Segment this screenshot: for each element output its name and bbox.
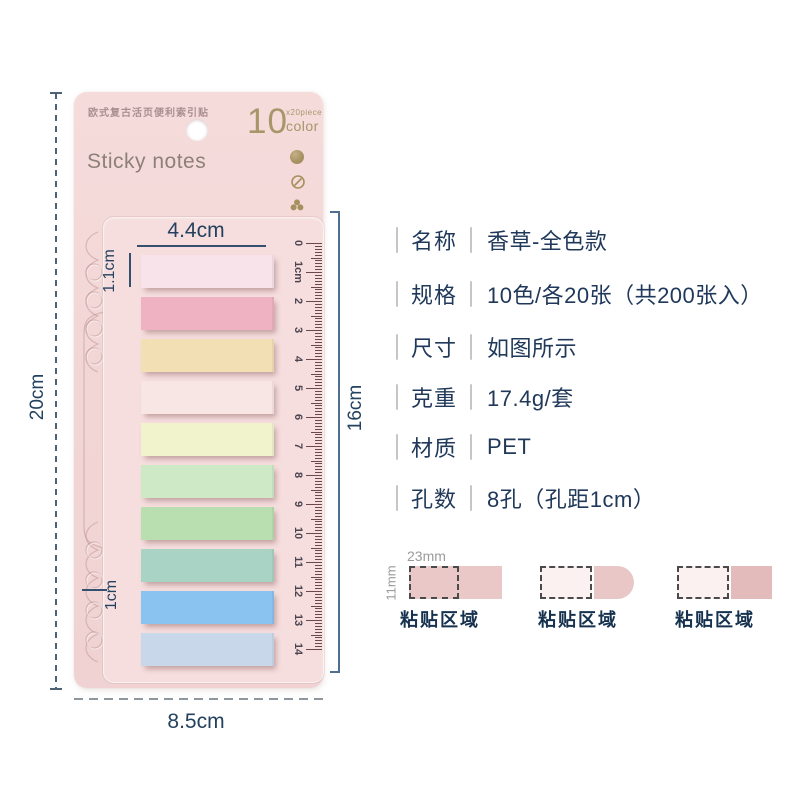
ruler-label: 11 xyxy=(292,556,304,568)
spec-value: 8孔（孔距1cm） xyxy=(487,482,655,514)
ruler-label: 14 xyxy=(292,643,304,655)
ruler-label: 3 xyxy=(292,327,304,333)
card-title: Sticky notes xyxy=(87,150,206,174)
spec-divider xyxy=(470,384,472,410)
ruler-tick xyxy=(315,295,322,296)
spec-value: PET xyxy=(487,434,531,460)
ruler-tick xyxy=(315,246,322,247)
ruler-tick xyxy=(315,443,322,444)
ruler-tick xyxy=(315,356,322,357)
ruler-tick xyxy=(311,432,322,433)
ruler-tick xyxy=(315,414,322,415)
spec-divider xyxy=(470,281,472,307)
spec-divider xyxy=(470,434,472,460)
ruler-tick xyxy=(306,388,322,389)
ruler-tick xyxy=(315,568,322,569)
ruler-tick xyxy=(315,391,322,392)
sticky-strip xyxy=(141,297,274,330)
ruler-tick xyxy=(315,553,322,554)
ruler-tick xyxy=(315,434,322,435)
ruler-tick xyxy=(315,626,322,627)
ruler-tick xyxy=(311,316,322,317)
ruler-tick xyxy=(315,281,322,282)
ruler-tick xyxy=(311,548,322,549)
ruler-tick xyxy=(315,260,322,261)
ruler-tick xyxy=(315,545,322,546)
ruler-label: 5 xyxy=(292,385,304,391)
ruler-tick xyxy=(315,327,322,328)
ruler-tick xyxy=(315,539,322,540)
sticky-strip xyxy=(141,507,274,540)
ruler-tick xyxy=(315,449,322,450)
ruler-tick xyxy=(315,321,322,322)
ruler-tick xyxy=(315,623,322,624)
ruler-tick xyxy=(315,559,322,560)
sticky-strip xyxy=(141,339,274,372)
ruler-tick xyxy=(315,513,322,514)
ruler-tick xyxy=(315,353,322,354)
ruler-tick xyxy=(315,379,322,380)
ruler-tick xyxy=(315,324,322,325)
spec-row-material: 材质 PET xyxy=(396,432,531,462)
ruler-tick xyxy=(306,649,322,650)
ruler-tick xyxy=(315,501,322,502)
dim-card-height: 20cm xyxy=(27,374,49,420)
ruler-tick xyxy=(315,310,322,311)
ruler-tick xyxy=(315,269,322,270)
ruler-tick xyxy=(315,646,322,647)
ruler-tick xyxy=(315,423,322,424)
ruler-tick xyxy=(315,452,322,453)
ruler-tick xyxy=(315,397,322,398)
adhesive-caption-2: 粘贴区域 xyxy=(538,606,618,632)
ruler-tick xyxy=(315,556,322,557)
spec-row-dimensions: 尺寸 如图所示 xyxy=(396,332,577,362)
spec-divider xyxy=(470,485,472,511)
ruler-tick xyxy=(315,284,322,285)
ruler-tick xyxy=(306,620,322,621)
ruler-tick xyxy=(315,617,322,618)
ruler-tick xyxy=(315,339,322,340)
ruler-tick xyxy=(306,533,322,534)
ruler-label: 13 xyxy=(292,614,304,626)
ruler-tick xyxy=(315,472,322,473)
ruler-tick xyxy=(315,542,322,543)
ruler-tick xyxy=(315,478,322,479)
adhesive-caption-3: 粘贴区域 xyxy=(675,606,755,632)
spec-row-holes: 孔数 8孔（孔距1cm） xyxy=(396,483,655,513)
spec-divider xyxy=(396,384,398,410)
ruler-tick xyxy=(315,582,322,583)
ruler-tick xyxy=(315,629,322,630)
ruler-tick xyxy=(315,426,322,427)
ruler-tick xyxy=(315,275,322,276)
ruler-tick xyxy=(315,614,322,615)
ruler-tick xyxy=(315,429,322,430)
ruler-tick xyxy=(306,301,322,302)
ruler-tick xyxy=(315,376,322,377)
ruler-tick xyxy=(315,455,322,456)
ruler-tick xyxy=(315,437,322,438)
ruler-tick xyxy=(315,594,322,595)
ruler-tick xyxy=(315,637,322,638)
spec-label: 规格 xyxy=(411,278,457,310)
spec-label: 尺寸 xyxy=(411,331,457,363)
ruler-tick xyxy=(315,530,322,531)
spec-row-weight: 克重 17.4g/套 xyxy=(396,382,574,412)
dim-strip-height-line xyxy=(129,253,131,287)
ruler-tick xyxy=(306,562,322,563)
ruler-tick xyxy=(315,382,322,383)
ruler-label: 0 xyxy=(292,240,304,246)
ruler-tick xyxy=(315,524,322,525)
spec-divider xyxy=(470,227,472,253)
ruler-tick xyxy=(315,597,322,598)
ruler-tick xyxy=(311,258,322,259)
spec-divider xyxy=(396,485,398,511)
ruler-tick xyxy=(315,507,322,508)
ruler-tick xyxy=(315,458,322,459)
color-count-number: 10 xyxy=(247,102,288,142)
ruler-tick xyxy=(315,585,322,586)
ruler-tick xyxy=(315,249,322,250)
ruler-label: 12 xyxy=(292,585,304,597)
ruler-label: 4 xyxy=(292,356,304,362)
piece-count-label: x20piece xyxy=(286,108,322,117)
sticky-strip xyxy=(141,591,274,624)
ruler-tick xyxy=(315,362,322,363)
gold-dot-icon xyxy=(290,150,304,164)
adhesive-diagram-2-tab xyxy=(594,566,634,599)
ruler-label: 9 xyxy=(292,501,304,507)
gold-slash-circle-icon xyxy=(290,174,306,190)
spec-value: 如图所示 xyxy=(487,331,577,363)
ruler-tick xyxy=(311,635,322,636)
spec-divider xyxy=(396,334,398,360)
sticky-strip xyxy=(141,549,274,582)
ruler-tick xyxy=(306,243,322,244)
dim-card-height-cap-top xyxy=(50,92,62,94)
ruler-tick xyxy=(315,469,322,470)
adhesive-caption-1: 粘贴区域 xyxy=(400,606,480,632)
ruler-tick xyxy=(315,385,322,386)
adhesive-diagram-3-zone xyxy=(677,566,729,599)
adhesive-width-label: 23mm xyxy=(407,548,446,564)
ruler-tick xyxy=(315,400,322,401)
dim-ruler-span: 16cm xyxy=(345,385,367,431)
ruler-tick xyxy=(306,446,322,447)
ruler-tick xyxy=(315,307,322,308)
ruler-tick xyxy=(315,313,322,314)
ruler-tick xyxy=(315,336,322,337)
product-infographic: 欧式复古活页便利索引贴 Sticky notes 10 x20piece col… xyxy=(0,0,800,800)
dim-card-height-line xyxy=(55,93,57,690)
dim-card-width-line xyxy=(74,698,324,700)
dim-ruler-span-bracket xyxy=(330,211,340,673)
ruler-tick xyxy=(311,519,322,520)
ruler-tick xyxy=(311,374,322,375)
ruler-tick xyxy=(315,516,322,517)
ruler-tick xyxy=(315,365,322,366)
spec-value: 10色/各20张（共200张入） xyxy=(487,278,763,310)
ruler-tick xyxy=(315,266,322,267)
spec-label: 克重 xyxy=(411,381,457,413)
spec-row-name: 名称 香草-全色款 xyxy=(396,225,607,255)
ruler-tick xyxy=(311,490,322,491)
dim-hole-spacing-line xyxy=(82,589,107,591)
ruler-tick xyxy=(315,603,322,604)
ruler-tick xyxy=(306,330,322,331)
ruler-tick xyxy=(315,643,322,644)
spec-value: 17.4g/套 xyxy=(487,381,574,413)
ruler-tick xyxy=(315,298,322,299)
sticky-strip xyxy=(141,423,274,456)
ruler-tick xyxy=(315,463,322,464)
ruler-tick xyxy=(306,359,322,360)
ruler-tick xyxy=(315,318,322,319)
ruler-tick xyxy=(306,272,322,273)
ruler-tick xyxy=(315,405,322,406)
sticky-strip xyxy=(141,381,274,414)
ruler-tick xyxy=(306,475,322,476)
ruler-label: 2 xyxy=(292,298,304,304)
ruler-tick xyxy=(315,510,322,511)
ruler-tick xyxy=(315,574,322,575)
ruler-label: 7 xyxy=(292,443,304,449)
ruler-tick xyxy=(315,600,322,601)
gold-trefoil-icon xyxy=(290,198,304,210)
ruler-tick xyxy=(315,579,322,580)
ruler-tick xyxy=(315,588,322,589)
dim-strip-height: 1.1cm xyxy=(101,249,119,293)
ruler-tick xyxy=(315,289,322,290)
ruler-tick xyxy=(315,466,322,467)
ruler-tick xyxy=(306,504,322,505)
ruler-tick xyxy=(315,571,322,572)
ruler-label: 10 xyxy=(292,527,304,539)
ruler-tick xyxy=(315,333,322,334)
ruler-tick xyxy=(311,345,322,346)
ruler-tick xyxy=(315,565,322,566)
sticky-strip xyxy=(141,255,274,288)
ruler-tick xyxy=(311,461,322,462)
spec-divider xyxy=(470,334,472,360)
ruler-tick xyxy=(315,394,322,395)
ruler-tick xyxy=(306,417,322,418)
ruler-tick xyxy=(315,521,322,522)
spec-label: 名称 xyxy=(411,224,457,256)
ruler-tick xyxy=(315,255,322,256)
spec-divider xyxy=(396,281,398,307)
color-word-label: color xyxy=(286,118,319,134)
card-subtitle-cn: 欧式复古活页便利索引贴 xyxy=(88,104,209,119)
spec-label: 孔数 xyxy=(411,482,457,514)
ruler-tick xyxy=(315,304,322,305)
ruler-tick xyxy=(315,408,322,409)
spec-divider xyxy=(396,434,398,460)
dim-strip-width-line xyxy=(137,245,266,247)
ruler-tick xyxy=(315,492,322,493)
ruler-tick xyxy=(315,252,322,253)
ruler-tick xyxy=(315,347,322,348)
dim-card-height-cap-bottom xyxy=(50,688,62,690)
ruler-tick xyxy=(311,403,322,404)
sticky-strip xyxy=(141,633,274,666)
adhesive-height-label: 11mm xyxy=(384,565,399,600)
hang-hole xyxy=(186,119,208,141)
ruler-tick xyxy=(315,368,322,369)
ruler-tick xyxy=(315,495,322,496)
spec-label: 材质 xyxy=(411,431,457,463)
ruler-tick xyxy=(315,498,322,499)
spec-row-size-spec: 规格 10色/各20张（共200张入） xyxy=(396,279,763,309)
ruler-tick xyxy=(315,640,322,641)
ruler-tick xyxy=(315,608,322,609)
ruler-tick xyxy=(315,536,322,537)
ruler-tick xyxy=(315,420,322,421)
ruler-tick xyxy=(315,611,322,612)
spec-value: 香草-全色款 xyxy=(487,224,607,256)
dim-hole-spacing: 1cm xyxy=(103,580,121,610)
dim-strip-width: 4.4cm xyxy=(167,219,224,243)
sticky-strip xyxy=(141,465,274,498)
ruler-tick xyxy=(315,278,322,279)
ruler-tick xyxy=(315,440,322,441)
ruler-tick xyxy=(315,481,322,482)
ruler-tick xyxy=(315,342,322,343)
adhesive-diagram-2-zone xyxy=(540,566,592,599)
ruler-tick xyxy=(315,484,322,485)
ruler-tick xyxy=(315,632,322,633)
ruler-tick xyxy=(315,487,322,488)
ruler-tick xyxy=(315,263,322,264)
ruler-label: 8 xyxy=(292,472,304,478)
adhesive-diagram-1-zone xyxy=(409,566,459,599)
adhesive-diagram-3-tab xyxy=(731,566,772,599)
ruler-label: 1cm xyxy=(292,261,304,283)
ruler-tick xyxy=(311,577,322,578)
ruler-tick xyxy=(311,287,322,288)
ruler-tick xyxy=(311,606,322,607)
ruler-tick xyxy=(306,591,322,592)
ruler-tick xyxy=(315,350,322,351)
ruler-label: 6 xyxy=(292,414,304,420)
dim-card-width: 8.5cm xyxy=(167,710,224,734)
ruler-tick xyxy=(315,550,322,551)
ruler-tick xyxy=(315,527,322,528)
ruler-tick xyxy=(315,371,322,372)
spec-divider xyxy=(396,227,398,253)
ruler-tick xyxy=(315,411,322,412)
ruler-tick xyxy=(315,292,322,293)
